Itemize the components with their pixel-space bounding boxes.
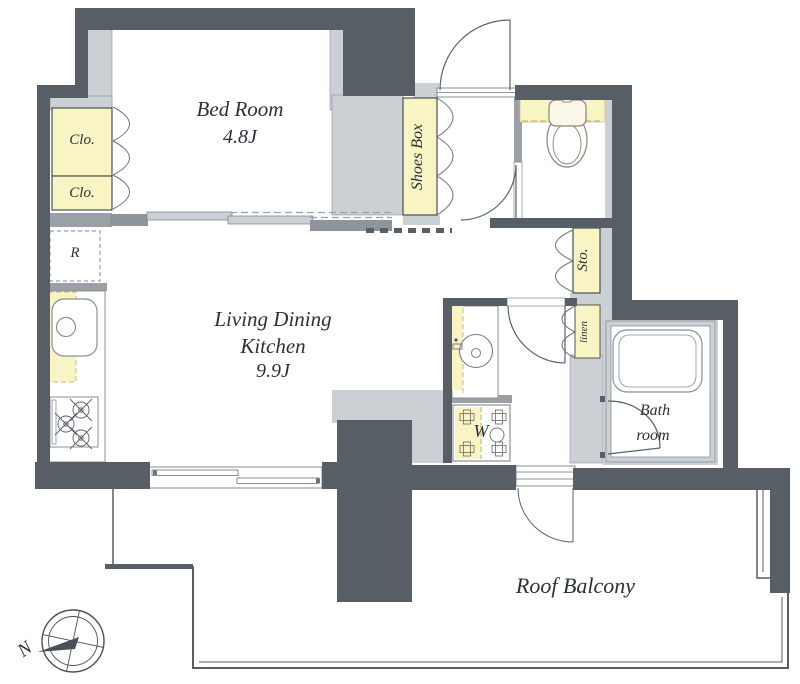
- washbasin: [452, 306, 498, 398]
- closet-folding-doors: [113, 107, 130, 209]
- bedroom-label: Bed Room: [150, 99, 330, 120]
- washroom-door-arc: [508, 306, 565, 363]
- balcony-outline: [105, 487, 788, 668]
- toilet-door-arc: [461, 165, 516, 220]
- floor-plan: Bed Room 4.8J Living Dining Kitchen 9.9J…: [0, 0, 800, 684]
- storage-folding-doors: [556, 230, 574, 292]
- bedroom-size-label: 4.8J: [150, 127, 330, 147]
- kitchen-sink: [52, 299, 97, 356]
- bathroom-label-line2: room: [615, 428, 691, 444]
- compass-icon: [36, 604, 110, 678]
- floor-plan-graphic: [0, 0, 800, 684]
- closet-upper-label: Clo.: [53, 133, 111, 148]
- shoes-box-label: Shoes Box: [410, 107, 430, 207]
- balcony-door-arc: [518, 488, 573, 542]
- shoes-box-folding-doors: [437, 98, 453, 215]
- stove: [50, 397, 98, 449]
- storage-label: Sto.: [576, 225, 596, 295]
- linen-label: linen: [579, 302, 595, 362]
- walls: [35, 8, 790, 602]
- washer-label: W: [463, 422, 499, 440]
- ldk-label-line1: Living Dining: [178, 309, 368, 330]
- bathtub: [613, 330, 702, 392]
- bathroom-label-line1: Bath: [617, 403, 693, 419]
- ldk-size-label: 9.9J: [178, 361, 368, 381]
- balcony-label: Roof Balcony: [478, 575, 673, 597]
- closet-lower-label: Clo.: [53, 186, 111, 201]
- ldk-label-line2: Kitchen: [178, 336, 368, 357]
- linen-folding-doors: [562, 306, 575, 358]
- entrance-door-arc: [440, 20, 510, 90]
- refrigerator-label: R: [57, 246, 93, 261]
